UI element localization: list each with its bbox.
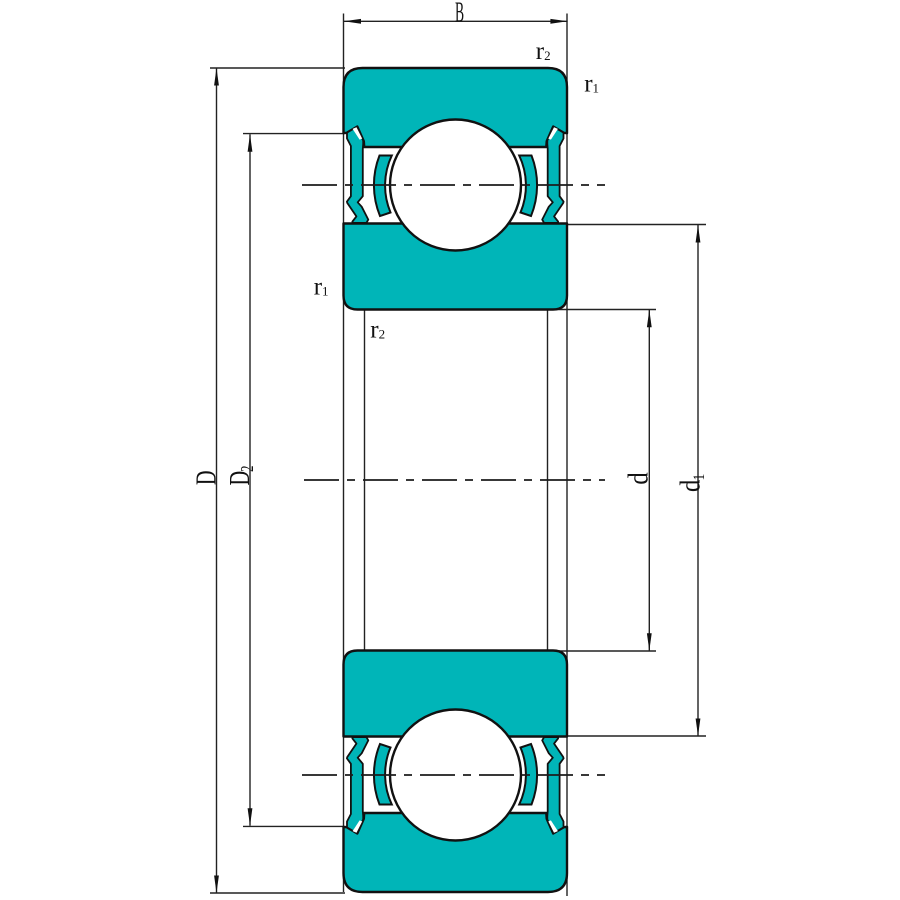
svg-text:d: d	[622, 472, 654, 485]
svg-text:r2: r2	[536, 38, 551, 65]
svg-text:r2: r2	[370, 316, 385, 343]
svg-text:r1: r1	[584, 70, 599, 97]
svg-text:d1: d1	[674, 474, 709, 492]
svg-text:r1: r1	[314, 274, 329, 301]
svg-text:B: B	[455, 0, 464, 28]
svg-text:D: D	[191, 470, 222, 485]
svg-text:D2: D2	[225, 466, 258, 486]
